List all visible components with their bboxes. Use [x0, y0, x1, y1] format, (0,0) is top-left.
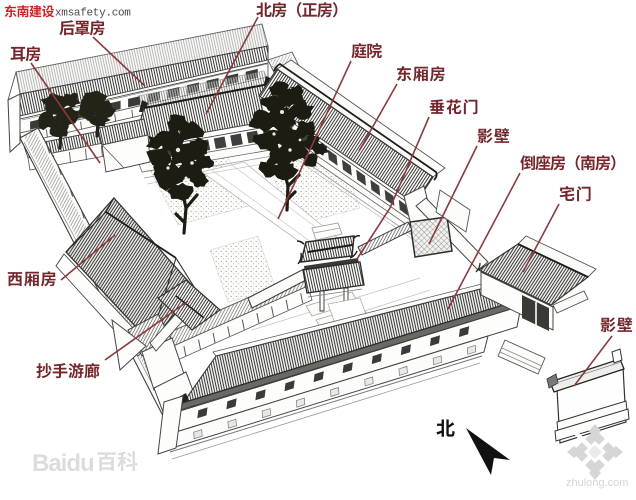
svg-text:xmsafety.com: xmsafety.com	[55, 8, 131, 20]
svg-text:zhulong.com: zhulong.com	[566, 477, 628, 489]
svg-text:Baidu: Baidu	[32, 450, 94, 477]
